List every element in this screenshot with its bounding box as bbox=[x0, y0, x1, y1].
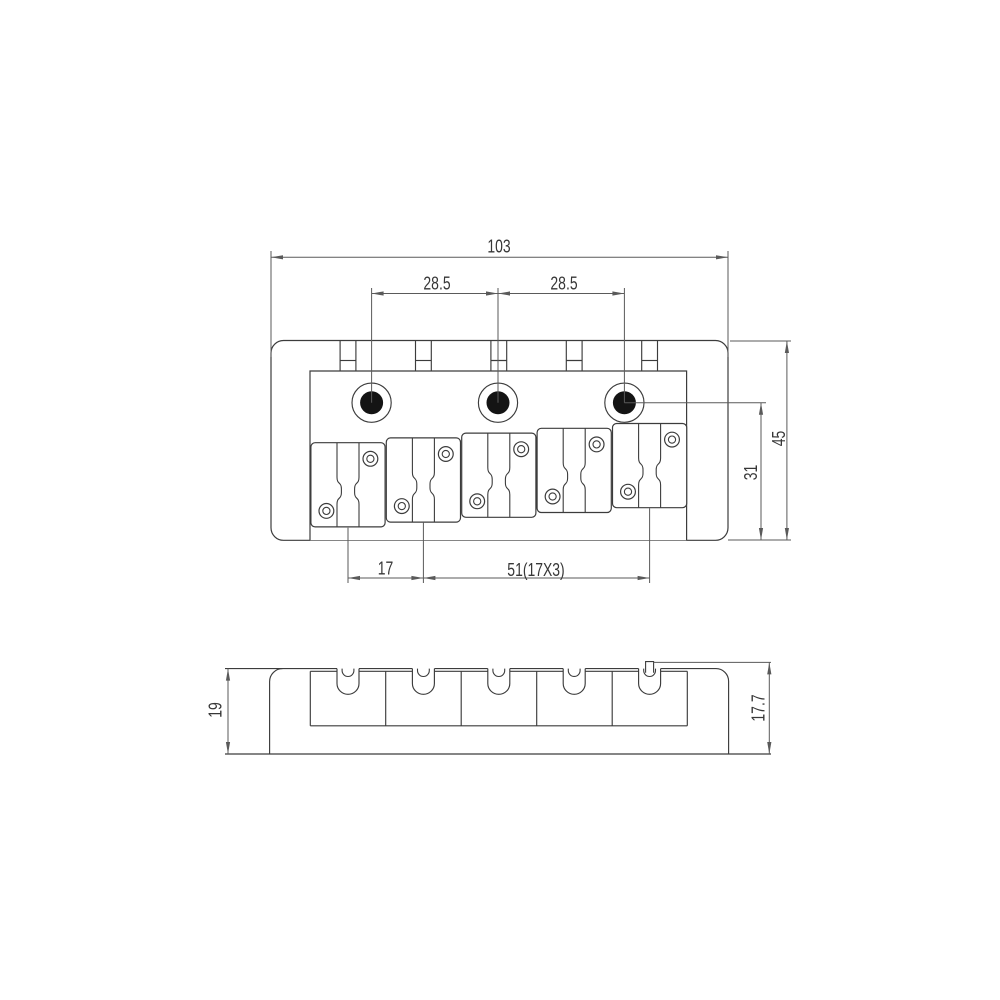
svg-text:51(17X3): 51(17X3) bbox=[507, 560, 564, 580]
svg-text:31: 31 bbox=[741, 465, 761, 481]
svg-text:45: 45 bbox=[769, 431, 789, 447]
svg-text:19: 19 bbox=[206, 702, 226, 718]
svg-text:17.7: 17.7 bbox=[749, 694, 769, 721]
svg-text:17: 17 bbox=[378, 558, 394, 578]
svg-text:28.5: 28.5 bbox=[423, 274, 450, 294]
svg-text:28.5: 28.5 bbox=[550, 274, 577, 294]
svg-text:103: 103 bbox=[487, 236, 510, 256]
